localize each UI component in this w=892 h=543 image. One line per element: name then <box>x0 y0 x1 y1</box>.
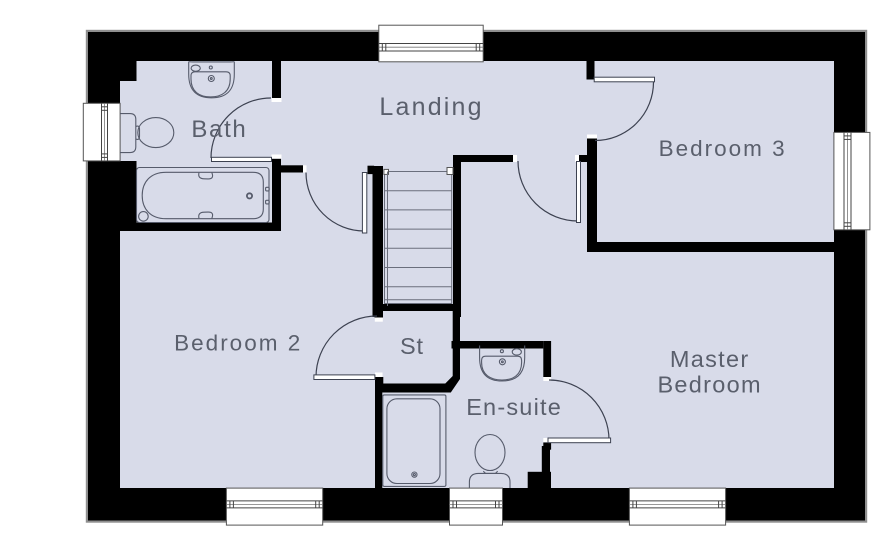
svg-text:Bedroom 2: Bedroom 2 <box>174 331 302 356</box>
svg-text:En-suite: En-suite <box>466 394 562 420</box>
svg-text:St: St <box>400 333 424 359</box>
svg-text:Bath: Bath <box>191 116 247 143</box>
svg-text:Bedroom 3: Bedroom 3 <box>659 136 787 161</box>
svg-text:Bedroom: Bedroom <box>657 372 761 398</box>
svg-text:Landing: Landing <box>379 93 483 121</box>
svg-text:Master: Master <box>670 346 750 372</box>
